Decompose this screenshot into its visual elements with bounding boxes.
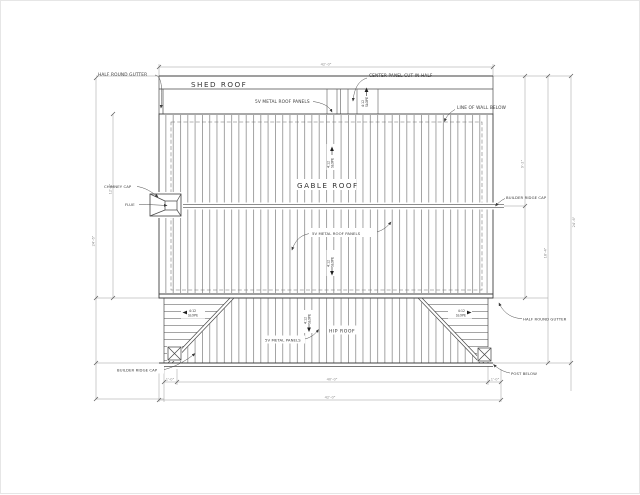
slope-arrow-shed: 4:12 SLOPE	[361, 88, 369, 108]
hip-roof-section	[159, 298, 493, 367]
slope-arrow-hip-right: 4:12 SLOPE	[448, 307, 472, 319]
label-gable-roof-group: GABLE ROOF	[294, 179, 359, 190]
label-sv-panels-hip-group: 5V METAL PANELS	[263, 336, 305, 344]
label-flue: FLUE	[125, 202, 135, 207]
roof-plan-page: 42'-0" 1'-0" 40'-0" 1'-0" 42'-0" 24'-6" …	[0, 0, 640, 494]
slope-arrow-hip-front: 4:12 SLOPE	[304, 310, 315, 333]
dim-bottom-inner: 40'-0"	[327, 378, 338, 382]
label-sv-panels-shed: 5V METAL ROOF PANELS	[255, 99, 310, 105]
label-builder-ridge-cap-left-group: BUILDER RIDGE CAP	[115, 366, 164, 374]
roof-plan-drawing: 42'-0" 1'-0" 40'-0" 1'-0" 42'-0" 24'-6" …	[1, 1, 640, 495]
label-half-round-gutter-right: HALF ROUND GUTTER	[523, 317, 567, 322]
dim-right-mid: 18'-4"	[544, 247, 548, 258]
label-sv-panels-gable-group: 5V METAL ROOF PANELS	[309, 228, 377, 237]
dim-bottom-overall: 42'-0"	[325, 396, 336, 400]
post-below-left	[167, 346, 182, 361]
slope-text: SLOPE	[188, 314, 198, 318]
label-line-of-wall-below: LINE OF WALL BELOW	[457, 105, 507, 111]
slope-arrow-gable-lower: 4:12 SLOPE	[327, 250, 338, 276]
label-chimney-cap: CHIMNEY CAP	[104, 184, 132, 189]
slope-text: SLOPE	[307, 314, 311, 324]
label-post-below: POST BELOW	[511, 371, 537, 376]
dim-bottom-right-offset: 1'-0"	[491, 378, 500, 382]
center-panel-lines	[327, 89, 378, 114]
slope-text: SLOPE	[330, 257, 334, 267]
slope-text: 4:12	[458, 309, 465, 313]
label-shed-roof: SHED ROOF	[191, 80, 247, 89]
label-half-round-gutter-left: HALF ROUND GUTTER	[98, 72, 147, 78]
dim-right-overall: 24'-6"	[572, 216, 576, 227]
label-gable-roof: GABLE ROOF	[297, 181, 359, 190]
label-hip-roof: HIP ROOF	[329, 329, 355, 335]
label-builder-ridge-cap-right: BUILDER RIDGE CAP	[506, 195, 547, 200]
label-builder-ridge-cap-left: BUILDER RIDGE CAP	[117, 368, 158, 373]
label-hip-roof-group: HIP ROOF	[327, 326, 358, 335]
label-center-panel-cut: CENTER PANEL CUT IN HALF	[369, 73, 433, 79]
label-sv-panels-gable: 5V METAL ROOF PANELS	[312, 231, 361, 236]
dim-top-width: 42'-0"	[321, 63, 332, 67]
slope-arrow-hip-left: 4:12 SLOPE	[181, 307, 205, 319]
slope-text: SLOPE	[365, 97, 369, 107]
slope-arrow-gable-upper: 4:12 SLOPE	[327, 144, 338, 170]
dim-left-overall: 24'-6"	[92, 235, 96, 246]
dim-right-upper: 9'-2"	[521, 159, 525, 168]
post-below-right	[477, 347, 492, 362]
gable-roof-section	[148, 114, 504, 298]
slope-text: SLOPE	[456, 314, 466, 318]
dim-bottom-left-offset: 1'-0"	[166, 378, 175, 382]
slope-text: SLOPE	[330, 158, 334, 168]
slope-text: 4:12	[189, 309, 196, 313]
label-sv-panels-hip: 5V METAL PANELS	[265, 338, 301, 343]
